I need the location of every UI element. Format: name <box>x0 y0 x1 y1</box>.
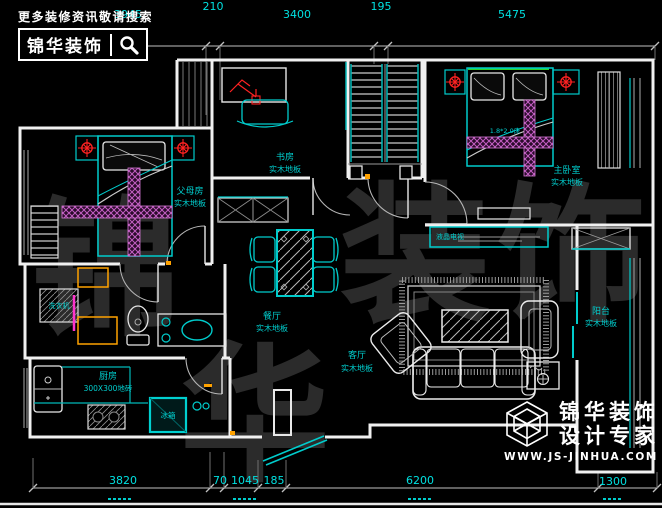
shoe-cabinet <box>218 197 288 222</box>
dim-top-5: 5475 <box>498 8 526 21</box>
search-icon <box>119 35 139 55</box>
company-name: 锦华装饰 <box>559 400 659 424</box>
dim-top-4: 195 <box>371 0 392 13</box>
brand-search-box: 锦华装饰 <box>18 28 148 61</box>
bed-runner <box>524 100 535 166</box>
master-room-label: 主卧室 实木地板 <box>551 164 583 187</box>
watermark-char: 饰 <box>497 168 647 344</box>
window-kitchen <box>24 368 27 428</box>
room-study: 书房 实木地板 <box>218 62 346 222</box>
dim-bottom-4: 185 <box>264 474 285 487</box>
bed-runner <box>467 137 553 148</box>
slatted-cabinet <box>31 206 58 258</box>
desk-chair <box>242 100 288 124</box>
svg-text:父母房: 父母房 <box>176 185 203 197</box>
room-dining: 餐厅 实木地板 <box>250 230 338 333</box>
divider <box>110 34 112 56</box>
dim-bottom-6: 1300 <box>599 475 627 488</box>
ceiling-lamp-icon <box>78 139 96 157</box>
desk-lamp-sketch <box>230 80 256 97</box>
ceiling-lamp-icon <box>557 73 575 91</box>
svg-text:主卧室: 主卧室 <box>553 164 580 176</box>
bed-runner <box>62 206 172 218</box>
dim-top-3: 3400 <box>283 8 311 21</box>
pillow <box>471 73 504 100</box>
pillow <box>513 73 546 100</box>
footer-branding: 锦华装饰 设计专家 WWW.JS-JINHUA.COM <box>503 399 659 463</box>
floorplan-screenshot: 锦 华 装 饰 3945 210 3400 195 5475 3820 70 1… <box>0 0 662 508</box>
fridge: 冰箱 <box>150 398 186 432</box>
desk <box>222 68 286 102</box>
window-parents <box>24 150 28 255</box>
kitchen-label: 厨房 300X300地砖 <box>84 370 133 393</box>
svg-text:实木地板: 实木地板 <box>256 323 288 333</box>
staircase <box>348 64 422 179</box>
company-cube-logo-icon <box>503 399 551 449</box>
svg-text:餐厅: 餐厅 <box>263 310 281 322</box>
ad-tagline: 更多装修资讯敬请搜索 <box>18 8 153 25</box>
dim-bottom-1: 3820 <box>109 474 137 487</box>
living-room-label: 客厅 实木地板 <box>341 349 373 373</box>
flue-hatch <box>183 62 207 126</box>
ceiling-lamp-icon <box>174 139 192 157</box>
study-room-label: 书房 实木地板 <box>269 151 301 174</box>
svg-text:实木地板: 实木地板 <box>585 318 617 328</box>
svg-text:300X300地砖: 300X300地砖 <box>84 383 133 393</box>
parents-room-label: 父母房 实木地板 <box>174 185 206 208</box>
dining-room-label: 餐厅 实木地板 <box>256 310 288 333</box>
side-table <box>527 362 559 389</box>
company-slogan: 设计专家 <box>559 424 659 448</box>
svg-text:书房: 书房 <box>276 151 294 163</box>
coffee-table <box>442 310 508 342</box>
dim-top-2: 210 <box>203 0 224 13</box>
ceiling-lamp-icon <box>446 73 464 91</box>
window-master <box>634 78 640 168</box>
svg-text:实木地板: 实木地板 <box>341 363 373 373</box>
bed-size-label: 1.8*2.0床 <box>490 126 521 135</box>
gas-stove <box>88 405 125 429</box>
dim-bottom-5: 6200 <box>406 474 434 487</box>
svg-text:实木地板: 实木地板 <box>551 177 583 187</box>
header-branding: 更多装修资讯敬请搜索 锦华装饰 <box>18 8 153 61</box>
brand-name: 锦华装饰 <box>27 32 103 57</box>
dim-bottom-2: 70 <box>213 474 227 487</box>
company-website: WWW.JS-JINHUA.COM <box>503 451 659 463</box>
tv-label: 液晶电视 <box>436 232 464 241</box>
svg-text:阳台: 阳台 <box>592 305 610 317</box>
svg-text:实木地板: 实木地板 <box>174 198 206 208</box>
kitchen-sink <box>34 366 62 412</box>
svg-text:客厅: 客厅 <box>348 349 366 361</box>
svg-text:厨房: 厨房 <box>99 370 117 382</box>
washer-label: 洗衣机 <box>49 301 70 310</box>
dim-bottom-3: 1045 <box>231 474 259 487</box>
fridge-label: 冰箱 <box>161 410 176 420</box>
svg-text:实木地板: 实木地板 <box>269 164 301 174</box>
